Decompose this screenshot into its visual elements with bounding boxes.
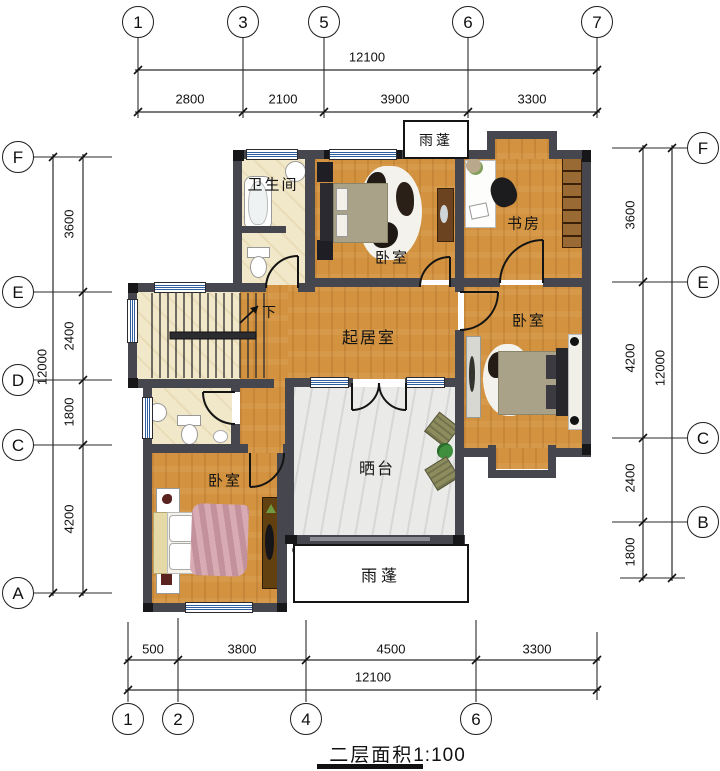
wall-segment	[231, 388, 240, 392]
terrace-sill-inset	[310, 537, 430, 541]
canopy-top-box: 雨蓬	[403, 120, 469, 159]
wall-segment	[582, 150, 591, 455]
wall-bathroom-divider	[242, 226, 286, 233]
wall-segment	[455, 378, 464, 544]
floor-plan: 雨蓬 雨蓬 卫生间 卧室 书房 起居室 卧室 卧室 晒台 下 1 3 5 6 7…	[0, 0, 720, 771]
grid-bubble-left-F: F	[2, 141, 34, 173]
dim-top-seg: 2100	[269, 92, 298, 107]
dim-left-seg: 1800	[62, 398, 77, 427]
room-label-bedroom-bottom: 卧室	[208, 470, 242, 491]
bed-headboard-top	[320, 183, 333, 241]
window-bathroom	[247, 150, 297, 159]
wall-segment	[128, 379, 274, 388]
bed-pillow	[546, 385, 556, 409]
dim-top-seg: 3300	[518, 92, 547, 107]
room-label-terrace: 晒台	[359, 455, 395, 479]
dim-top-total: 12100	[349, 50, 385, 65]
wall-segment	[285, 378, 294, 544]
grid-bubble-right-B: B	[687, 506, 719, 538]
wall-corner	[582, 444, 591, 455]
wall-corner	[453, 535, 464, 544]
dim-bottom-seg: 3800	[228, 642, 257, 657]
wall-segment	[543, 278, 591, 287]
window-living-left	[311, 378, 348, 387]
grid-bubble-bottom-2: 2	[162, 703, 194, 735]
dim-left-seg: 4200	[62, 505, 77, 534]
nightstand	[317, 162, 333, 182]
mat-decor	[570, 416, 579, 425]
wall-corner	[285, 535, 297, 544]
wall-corner	[233, 150, 244, 161]
bed-headboard-right	[556, 348, 568, 416]
dim-right-seg: 2400	[623, 464, 638, 493]
wall-bay-top	[487, 131, 557, 139]
grid-bubble-left-C: C	[2, 429, 34, 461]
dim-bottom-seg: 3300	[523, 642, 552, 657]
console-decor	[469, 356, 475, 392]
bookshelf	[562, 158, 582, 248]
grid-bubble-left-A: A	[2, 577, 34, 609]
bed-duvet-pink	[190, 503, 249, 577]
dim-right-total: 12000	[653, 350, 668, 386]
room-label-living: 起居室	[342, 324, 396, 348]
grid-bubble-right-E: E	[687, 266, 719, 298]
floor-drain	[213, 430, 228, 443]
canopy-top-label: 雨蓬	[419, 130, 453, 150]
bed-pillow	[336, 214, 348, 237]
dim-right-seg: 3600	[623, 201, 638, 230]
dresser-mirror	[440, 205, 448, 223]
nightstand-decor	[161, 574, 172, 585]
grid-bubble-left-D: D	[2, 364, 34, 396]
wall-segment	[298, 283, 315, 292]
wall-corner	[143, 603, 153, 612]
bed-pillow	[546, 355, 556, 379]
drawing-title-scale: 1:100	[413, 745, 466, 766]
title-underline	[317, 764, 423, 769]
tv	[265, 524, 274, 560]
wall-corner	[582, 150, 591, 162]
grid-bubble-bottom-1: 1	[112, 703, 144, 735]
plan-linework	[0, 0, 720, 771]
grid-bubble-top-1: 1	[122, 6, 154, 38]
dim-top-seg: 2800	[176, 92, 205, 107]
canopy-bottom-box: 雨蓬	[293, 544, 469, 603]
bed-pillow	[336, 188, 348, 211]
grid-bubble-top-3: 3	[227, 6, 259, 38]
grid-bubble-top-6: 6	[452, 6, 484, 38]
cabinet-decor	[266, 504, 276, 513]
window-bedroom-top	[330, 150, 396, 159]
grid-bubble-bottom-4: 4	[290, 703, 322, 735]
window-stair-west	[128, 300, 137, 342]
stairs-down-label: 下	[262, 302, 276, 322]
wall-segment	[348, 378, 353, 387]
dim-left-seg: 3600	[62, 210, 77, 239]
room-floor-study-bay	[495, 139, 549, 159]
wall-segment	[450, 278, 500, 287]
room-label-bedroom-right: 卧室	[512, 310, 546, 331]
dim-bottom-total: 12100	[355, 670, 391, 685]
room-label-bedroom-top: 卧室	[375, 247, 409, 268]
room-floor-bedroom-right-bay	[496, 448, 548, 469]
room-label-bathroom: 卫生间	[247, 174, 298, 195]
desk-plant	[466, 158, 481, 173]
window-living-right	[407, 378, 444, 387]
window-stair-north	[155, 283, 205, 292]
window-wc-west	[143, 398, 152, 438]
wall-bay-right	[549, 131, 557, 159]
wall-segment	[305, 150, 315, 290]
dim-left-seg: 2400	[62, 322, 77, 351]
window-bedroom-bottom	[186, 603, 252, 612]
nightstand-decor	[162, 494, 172, 504]
grid-bubble-top-7: 7	[581, 6, 613, 38]
dim-right-seg: 4200	[623, 344, 638, 373]
toilet-bowl	[250, 256, 267, 278]
wall-segment	[455, 150, 464, 292]
wall-segment	[233, 150, 242, 292]
toilet-bowl	[181, 424, 198, 445]
grid-bubble-bottom-6: 6	[460, 703, 492, 735]
grid-bubble-top-5: 5	[308, 6, 340, 38]
room-label-study: 书房	[507, 213, 541, 234]
drawing-title: 二层面积1:100	[300, 740, 495, 767]
nightstand	[317, 240, 333, 260]
wall-segment	[455, 330, 464, 378]
dim-bottom-seg: 500	[142, 642, 164, 657]
mat-decor	[570, 337, 579, 346]
wall-bay-right	[548, 445, 556, 478]
wall-bay-bottom	[488, 470, 556, 478]
wall-corner	[396, 150, 402, 159]
wall-segment	[143, 453, 152, 612]
grid-bubble-left-E: E	[2, 276, 34, 308]
dim-bottom-seg: 4500	[377, 642, 406, 657]
dim-right-seg: 1800	[623, 538, 638, 567]
wall-segment	[305, 278, 420, 287]
dim-top-seg: 3900	[381, 92, 410, 107]
drawing-title-text: 二层面积	[329, 745, 413, 766]
dim-left-total: 12000	[35, 349, 50, 385]
wall-corner	[277, 603, 287, 612]
grid-bubble-right-F: F	[687, 132, 719, 164]
rug-spot	[396, 182, 414, 216]
wall-segment	[143, 444, 248, 453]
grid-bubble-right-C: C	[687, 422, 719, 454]
canopy-bottom-label: 雨蓬	[361, 562, 401, 586]
wall-corner	[128, 283, 138, 293]
wall-corner	[128, 378, 138, 388]
